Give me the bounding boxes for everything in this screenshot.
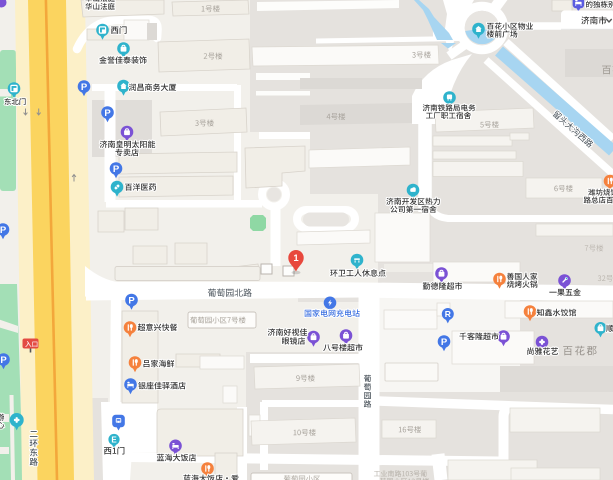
svg-text:P: P xyxy=(0,225,7,236)
svg-text:P: P xyxy=(81,82,88,93)
svg-text:P: P xyxy=(441,337,448,348)
svg-text:P: P xyxy=(113,164,120,175)
svg-text:P: P xyxy=(104,108,111,119)
svg-text:E: E xyxy=(111,435,117,444)
svg-text:P: P xyxy=(0,355,7,366)
svg-text:1: 1 xyxy=(293,253,299,264)
svg-text:R: R xyxy=(445,309,451,319)
svg-text:P: P xyxy=(128,295,135,306)
